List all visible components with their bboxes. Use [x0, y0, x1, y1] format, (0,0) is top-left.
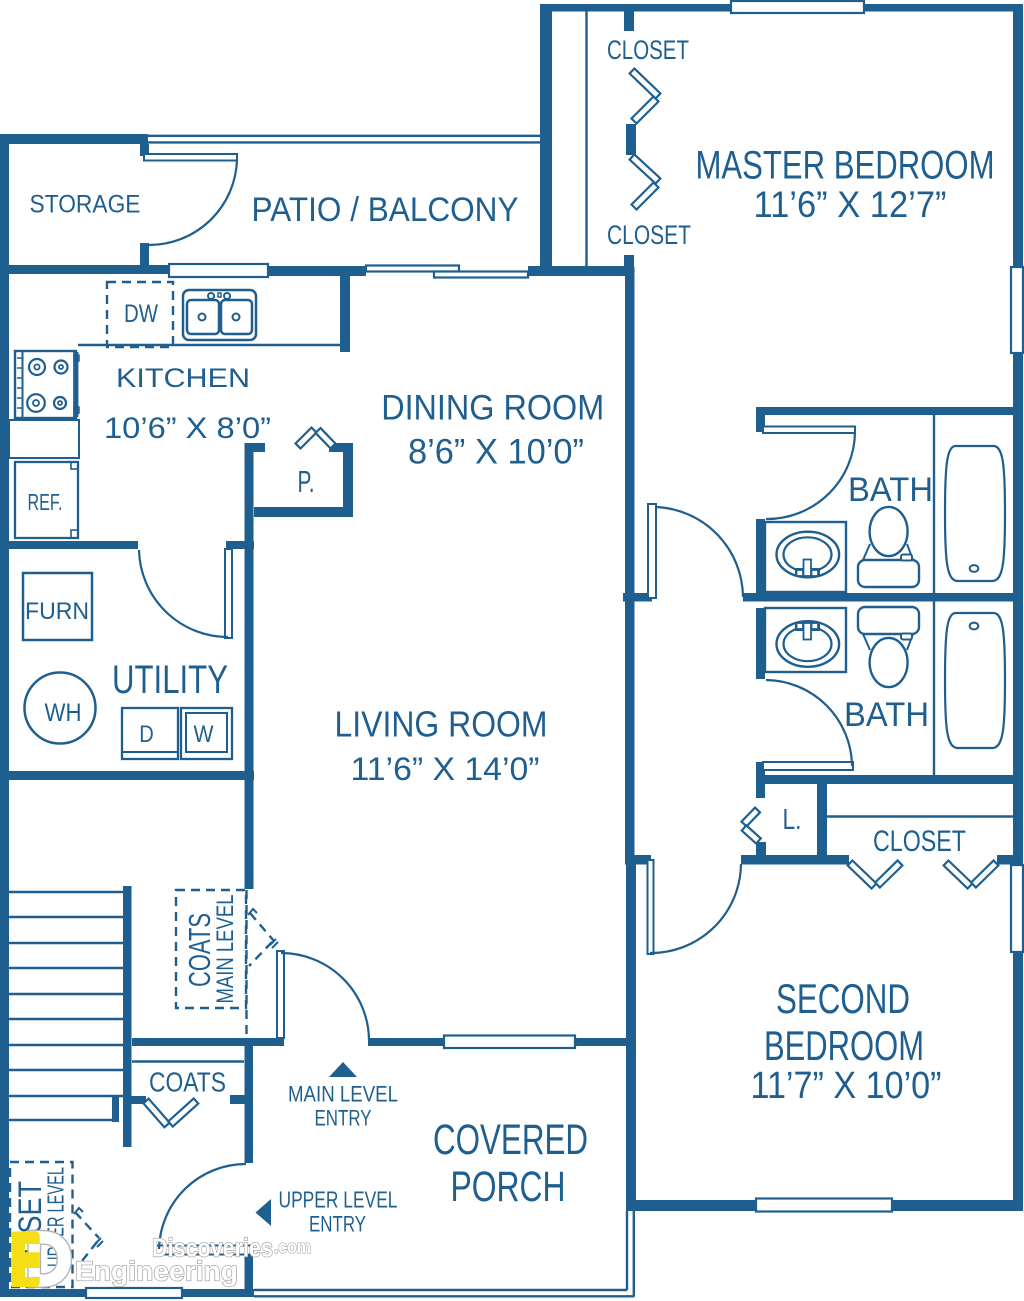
svg-text:MASTER BEDROOM: MASTER BEDROOM	[696, 144, 995, 188]
svg-text:BATH: BATH	[848, 471, 933, 509]
svg-text:MAIN LEVEL: MAIN LEVEL	[212, 895, 239, 1004]
svg-text:ENTRY: ENTRY	[315, 1106, 372, 1131]
svg-text:COATS: COATS	[149, 1067, 226, 1098]
svg-text:FURN: FURN	[25, 598, 89, 625]
svg-text:STORAGE: STORAGE	[30, 191, 141, 219]
svg-text:11’7” X 10’0”: 11’7” X 10’0”	[751, 1065, 942, 1107]
svg-text:CLOSET: CLOSET	[873, 825, 966, 858]
svg-text:.com: .com	[274, 1237, 311, 1257]
svg-text:CLOSET: CLOSET	[607, 35, 689, 65]
svg-text:D: D	[139, 721, 154, 748]
svg-text:LIVING ROOM: LIVING ROOM	[335, 704, 548, 745]
svg-text:11’6” X 12’7”: 11’6” X 12’7”	[754, 184, 947, 225]
svg-text:Engineering: Engineering	[75, 1256, 238, 1287]
svg-text:DINING ROOM: DINING ROOM	[381, 388, 604, 428]
svg-text:W: W	[194, 721, 214, 748]
svg-text:11’6” X 14’0”: 11’6” X 14’0”	[351, 751, 540, 787]
svg-text:UPPER LEVEL: UPPER LEVEL	[279, 1186, 398, 1212]
svg-text:PORCH: PORCH	[451, 1163, 566, 1211]
svg-text:DW: DW	[124, 300, 158, 328]
svg-text:CLOSET: CLOSET	[607, 220, 691, 250]
svg-text:REF.: REF.	[28, 489, 63, 515]
svg-text:ENTRY: ENTRY	[309, 1212, 366, 1237]
svg-text:BEDROOM: BEDROOM	[764, 1022, 924, 1069]
svg-text:PATIO / BALCONY: PATIO / BALCONY	[252, 191, 519, 229]
svg-text:L.: L.	[783, 804, 802, 836]
svg-text:10’6” X 8’0”: 10’6” X 8’0”	[104, 412, 271, 445]
svg-text:MAIN LEVEL: MAIN LEVEL	[288, 1082, 398, 1107]
svg-text:WH: WH	[45, 699, 82, 727]
svg-text:8’6” X 10’0”: 8’6” X 10’0”	[408, 433, 584, 472]
svg-text:KITCHEN: KITCHEN	[116, 363, 250, 393]
svg-text:SECOND: SECOND	[776, 975, 910, 1022]
svg-text:P.: P.	[298, 464, 315, 499]
svg-text:COVERED: COVERED	[433, 1116, 588, 1164]
svg-text:UTILITY: UTILITY	[112, 658, 228, 702]
svg-text:BATH: BATH	[844, 696, 929, 734]
